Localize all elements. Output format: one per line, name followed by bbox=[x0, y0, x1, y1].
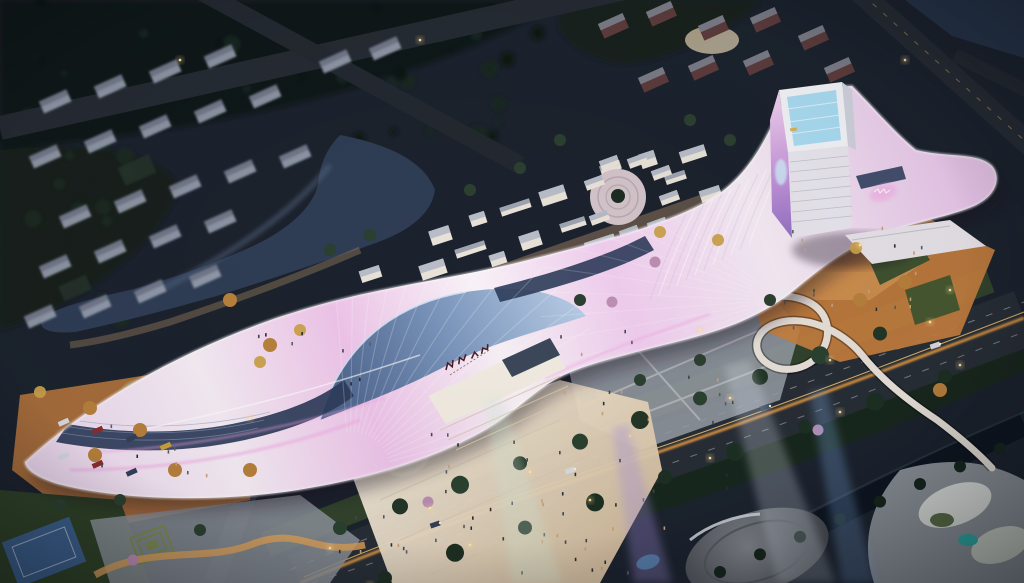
architectural-rendering bbox=[0, 0, 1024, 583]
vignette-overlay bbox=[0, 0, 1024, 583]
